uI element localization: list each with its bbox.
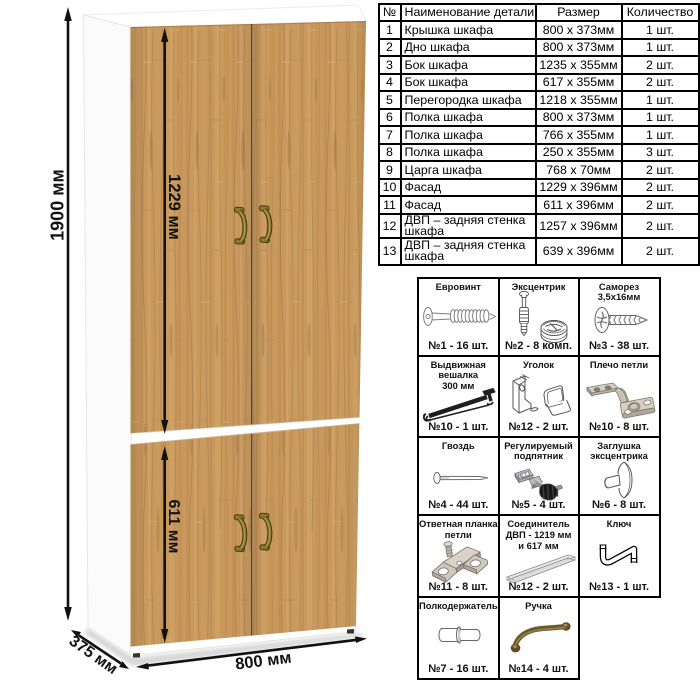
- svg-text:1229 мм: 1229 мм: [165, 174, 183, 240]
- svg-text:1900 мм: 1900 мм: [48, 169, 68, 241]
- svg-text:611 мм: 611 мм: [165, 500, 182, 554]
- svg-text:800 мм: 800 мм: [234, 649, 292, 674]
